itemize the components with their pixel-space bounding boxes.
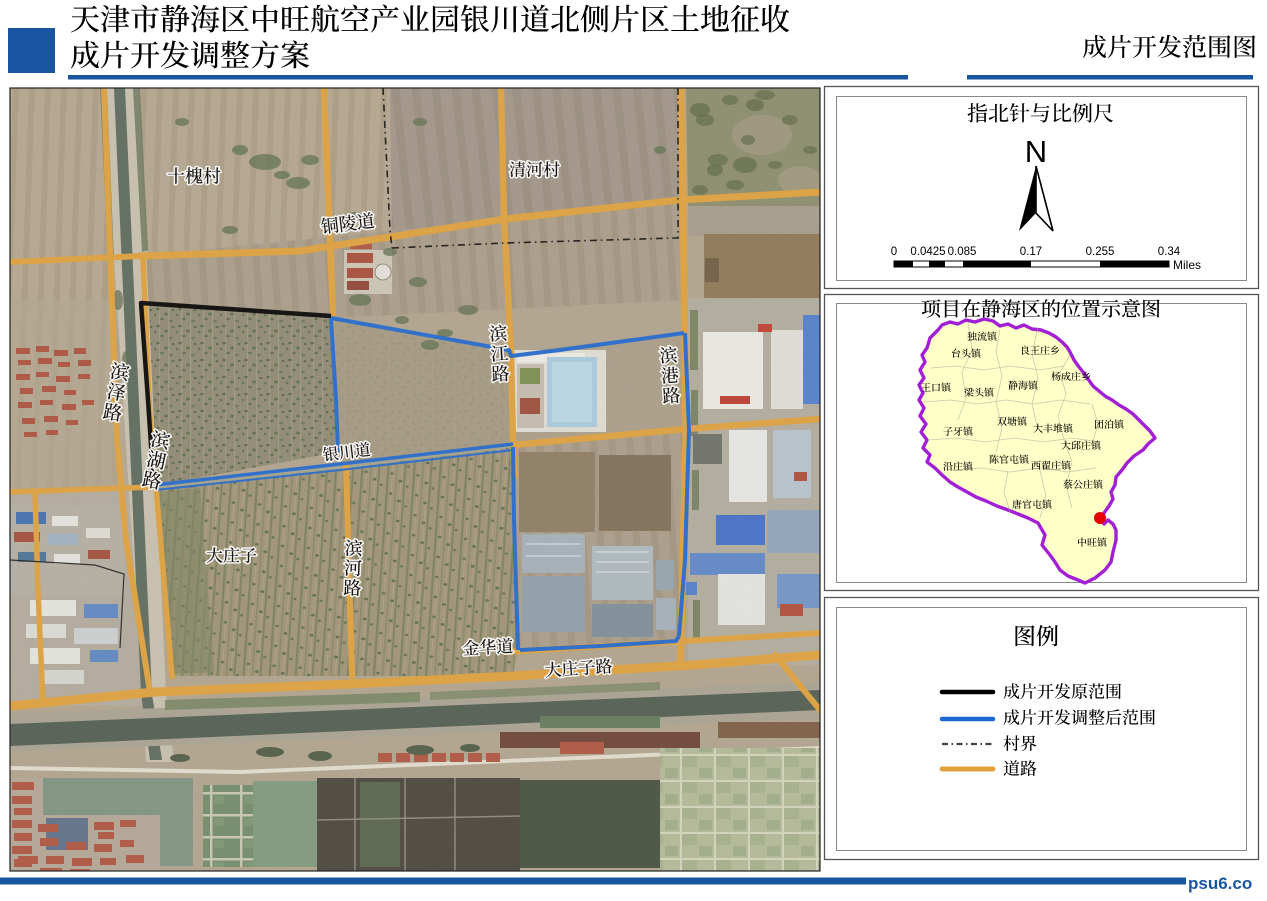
- svg-text:0: 0: [891, 246, 897, 258]
- svg-text:0.17: 0.17: [1020, 246, 1042, 258]
- svg-text:0.255: 0.255: [1086, 246, 1115, 258]
- svg-text:Miles: Miles: [1173, 258, 1201, 272]
- svg-text:0.085: 0.085: [948, 246, 977, 258]
- svg-text:0.34: 0.34: [1158, 246, 1181, 258]
- svg-text:N: N: [1025, 134, 1047, 169]
- svg-text:psu6.co: psu6.co: [1188, 874, 1252, 893]
- svg-text:0.0425: 0.0425: [910, 246, 945, 258]
